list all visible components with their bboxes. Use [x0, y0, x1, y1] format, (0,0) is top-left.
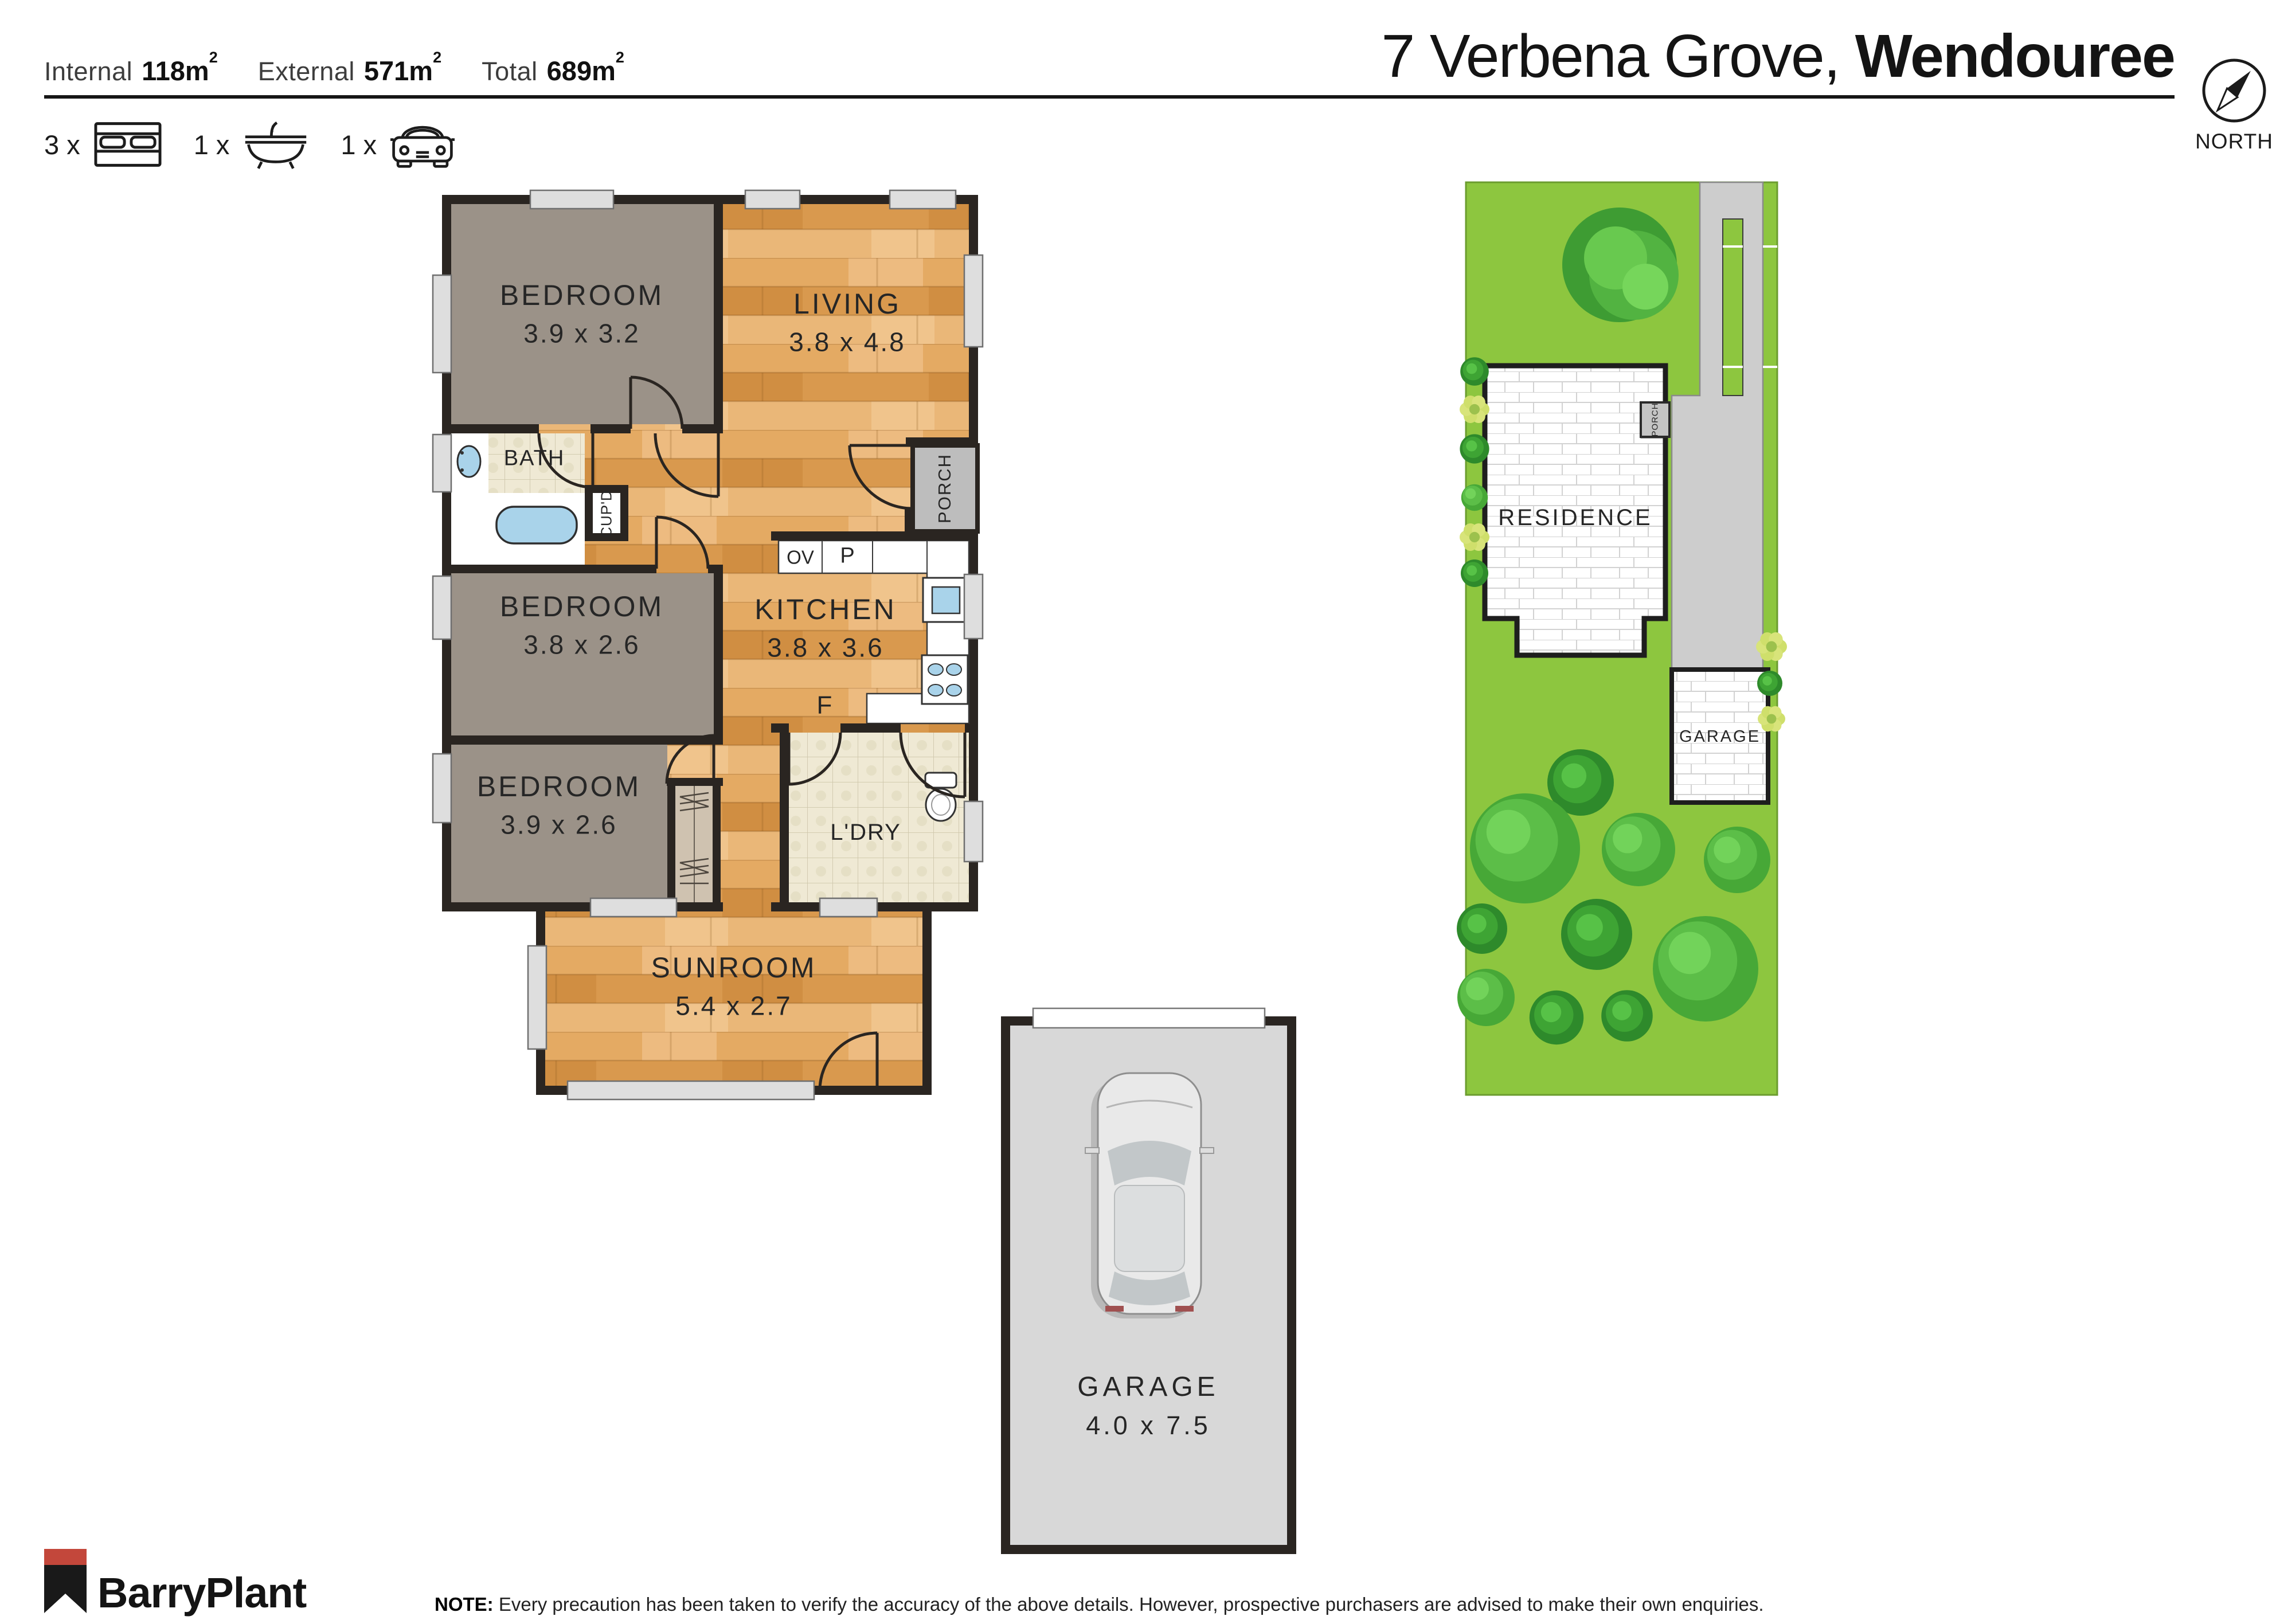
- feature-baths: 1 x: [194, 119, 309, 170]
- site-porch-label: PORCH: [1651, 402, 1660, 436]
- bedroom3-label: BEDROOM: [477, 769, 641, 805]
- stat-label: External: [258, 57, 355, 87]
- feature-icons-row: 3 x 1 x: [44, 118, 455, 171]
- burner: [947, 664, 961, 675]
- living-label: LIVING: [793, 286, 901, 322]
- header-divider: [44, 95, 2175, 99]
- oven-label: OV: [787, 545, 814, 569]
- feature-cars: 1 x: [341, 119, 455, 170]
- bedroom3-dims: 3.9 x 2.6: [500, 808, 617, 842]
- car-count: 1 x: [341, 129, 377, 161]
- kitchen-dims: 3.8 x 3.6: [767, 631, 883, 664]
- disclaimer-note: NOTE: Every precaution has been taken to…: [435, 1594, 1764, 1615]
- living-dims: 3.8 x 4.8: [789, 326, 905, 359]
- stat-total: Total 689m2: [482, 55, 624, 87]
- area-stats: Internal 118m2 External 571m2 Total 689m…: [44, 55, 624, 87]
- wardrobe-right-wall: [713, 786, 721, 902]
- garage-label: GARAGE: [1077, 1370, 1219, 1404]
- cupboard-label: CUP'D: [598, 490, 616, 538]
- kitchen-sink: [932, 587, 960, 613]
- note-label: NOTE:: [435, 1594, 494, 1615]
- sunroom-label: SUNROOM: [651, 950, 816, 986]
- bath-sink: [457, 446, 480, 477]
- address-street: 7 Verbena Grove,: [1381, 22, 1839, 90]
- floorplan: [433, 190, 1296, 1554]
- site-garage-label: GARAGE: [1679, 726, 1761, 747]
- stat-external: External 571m2: [258, 55, 441, 87]
- car-icon: [1085, 1073, 1214, 1318]
- bedroom1-floor: [451, 204, 714, 424]
- bed-icon: [94, 122, 162, 167]
- bath-label: BATH: [504, 445, 565, 472]
- stat-label: Internal: [44, 57, 132, 87]
- stat-value: 118m2: [142, 55, 218, 87]
- stove-unit: [922, 655, 968, 704]
- brand-name: BarryPlant: [97, 1568, 306, 1617]
- floorplan-page: Internal 118m2 External 571m2 Total 689m…: [0, 0, 2276, 1624]
- stat-value: 689m2: [547, 55, 624, 87]
- burner: [947, 684, 961, 696]
- residence-label: RESIDENCE: [1498, 503, 1652, 532]
- bedroom1-label: BEDROOM: [500, 277, 664, 314]
- north-label: NORTH: [2195, 130, 2273, 154]
- bathtub: [496, 507, 577, 543]
- sink-tap-dot: [460, 468, 464, 472]
- burner: [928, 664, 943, 675]
- feature-beds: 3 x: [44, 122, 162, 167]
- stat-label: Total: [482, 57, 538, 87]
- note-text: Every precaution has been taken to verif…: [499, 1594, 1764, 1615]
- sunroom-dims: 5.4 x 2.7: [675, 989, 792, 1023]
- car-icon: [390, 119, 455, 170]
- page-title: 7 Verbena Grove, Wendouree: [1381, 22, 2175, 91]
- address-suburb: Wendouree: [1855, 22, 2175, 90]
- siteplan: [1457, 182, 1787, 1095]
- brand-logo-icon: [44, 1549, 87, 1613]
- bedroom2-dims: 3.8 x 2.6: [523, 628, 640, 662]
- burner: [928, 684, 943, 696]
- compass-icon: [2204, 60, 2265, 121]
- garage-building: [1001, 1008, 1296, 1554]
- garage-dims: 4.0 x 7.5: [1086, 1410, 1211, 1442]
- stat-value: 571m2: [364, 55, 441, 87]
- bath-icon: [243, 119, 308, 170]
- wardrobe-left-wall: [667, 786, 675, 902]
- bath-count: 1 x: [194, 129, 230, 161]
- bedroom2-label: BEDROOM: [500, 589, 664, 625]
- fridge-label: F: [817, 690, 832, 721]
- bed-count: 3 x: [44, 129, 80, 161]
- sink-tap-dot: [460, 451, 464, 455]
- stat-internal: Internal 118m2: [44, 55, 218, 87]
- porch-label: PORCH: [934, 453, 955, 523]
- pantry-label: P: [840, 542, 854, 570]
- kitchen-label: KITCHEN: [754, 592, 896, 628]
- garage-door: [1033, 1008, 1265, 1028]
- bedroom1-dims: 3.9 x 3.2: [523, 317, 640, 350]
- hall-sunroom-opening: [723, 902, 771, 921]
- laundry-label: L'DRY: [830, 818, 901, 847]
